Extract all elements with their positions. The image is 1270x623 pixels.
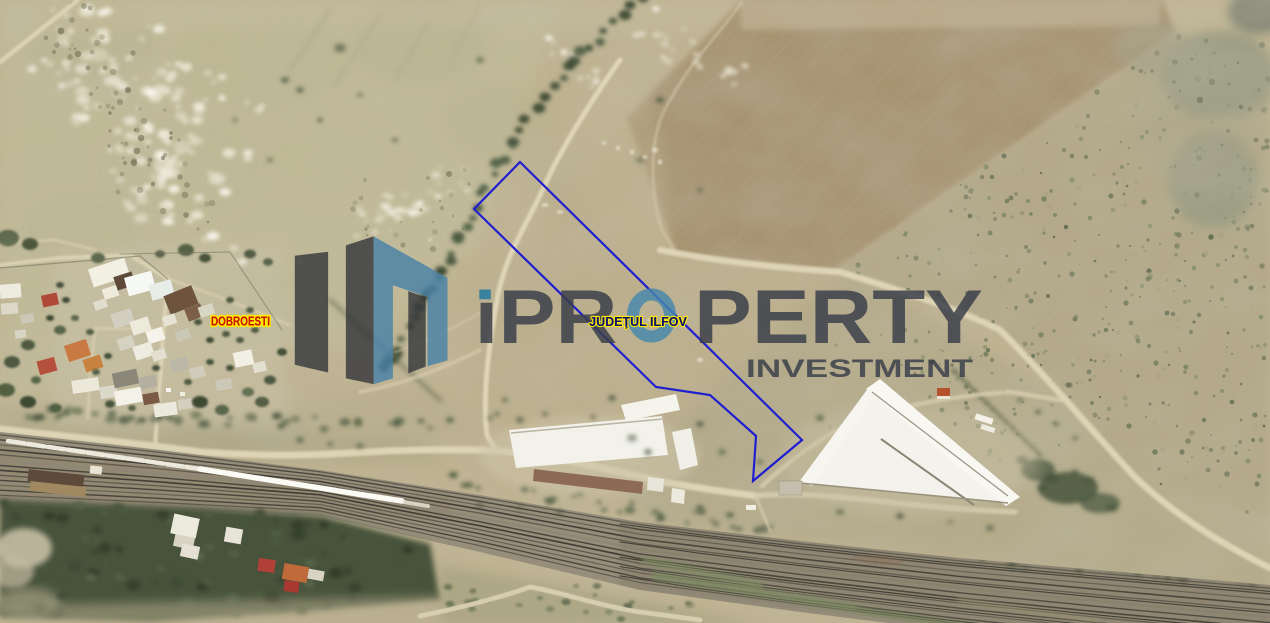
svg-text:INVESTMENT: INVESTMENT [746,355,973,383]
svg-text:JUDEŢUL ILFOV: JUDEŢUL ILFOV [589,315,687,329]
svg-text:DOBROESTI: DOBROESTI [211,315,270,329]
svg-text:PERTY: PERTY [694,275,983,360]
